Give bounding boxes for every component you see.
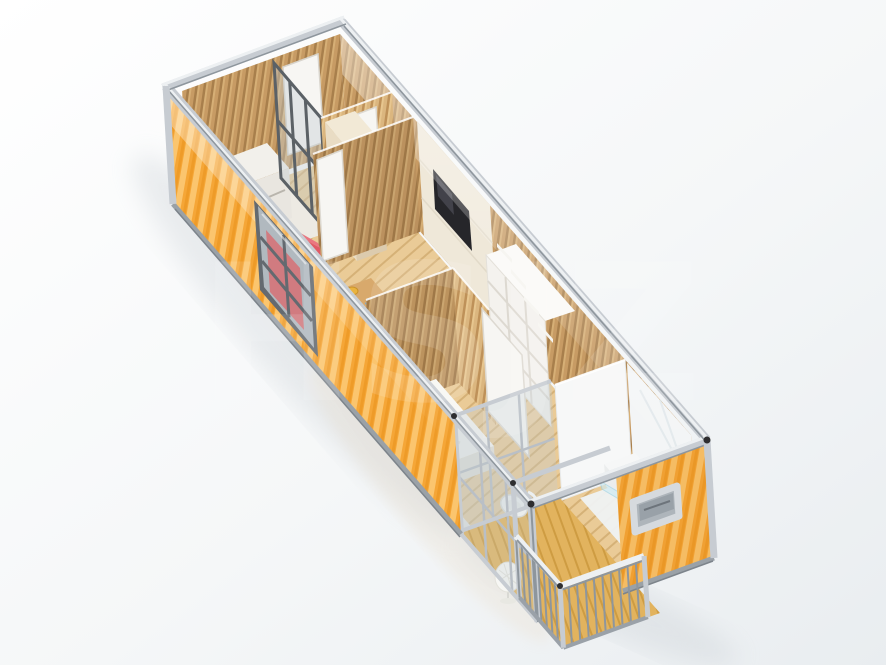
- corner-cap: [510, 480, 516, 486]
- render-canvas: HSJZ: [0, 0, 886, 665]
- container-house-render: HSJZ: [0, 0, 886, 665]
- corner-cap: [704, 437, 711, 444]
- lamp-base: [500, 598, 516, 604]
- corner-cap: [528, 501, 535, 508]
- railing-cap: [557, 583, 563, 589]
- watermark: HSJZ: [198, 224, 702, 445]
- railing-corner-post: [560, 586, 563, 648]
